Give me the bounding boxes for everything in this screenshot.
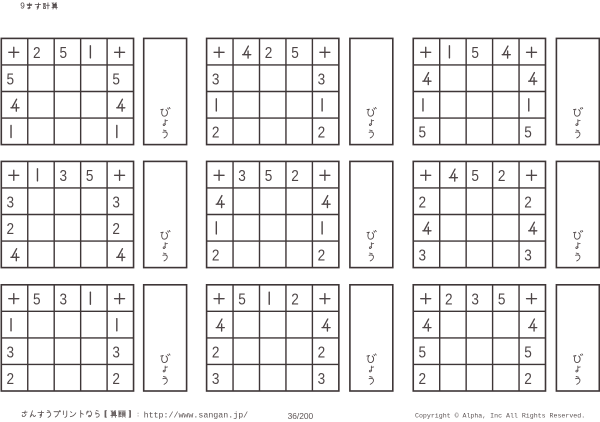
svg-text:2: 2	[524, 371, 532, 388]
svg-text:5: 5	[291, 45, 299, 62]
svg-text:3: 3	[7, 344, 15, 361]
svg-text:5: 5	[471, 168, 479, 185]
svg-text:2: 2	[318, 344, 326, 361]
svg-text:36/200: 36/200	[288, 411, 314, 421]
svg-text:2: 2	[318, 125, 326, 142]
svg-text:http://www.sangan.jp/: http://www.sangan.jp/	[144, 410, 249, 420]
svg-text:2: 2	[7, 221, 15, 238]
svg-text:3: 3	[471, 291, 479, 308]
svg-text:3: 3	[212, 371, 220, 388]
svg-text:5: 5	[419, 125, 427, 142]
svg-text:2: 2	[265, 45, 273, 62]
svg-text:2: 2	[318, 248, 326, 265]
svg-text:5: 5	[59, 45, 67, 62]
svg-text:2: 2	[291, 291, 299, 308]
svg-text:3: 3	[7, 194, 15, 211]
svg-text:5: 5	[112, 71, 120, 88]
svg-text:2: 2	[112, 371, 120, 388]
svg-text:2: 2	[212, 248, 220, 265]
svg-text:5: 5	[238, 291, 246, 308]
svg-text:2: 2	[498, 168, 506, 185]
svg-text:2: 2	[419, 371, 427, 388]
svg-text:2: 2	[7, 371, 15, 388]
svg-text:3: 3	[238, 168, 246, 185]
svg-text:5: 5	[498, 291, 506, 308]
svg-text:Copyright © Alpha, Inc All Rig: Copyright © Alpha, Inc All Rights Reserv…	[415, 411, 585, 419]
svg-text:3: 3	[524, 248, 532, 265]
svg-text:5: 5	[265, 168, 273, 185]
svg-text:2: 2	[445, 291, 453, 308]
svg-text:2: 2	[212, 125, 220, 142]
svg-text:2: 2	[419, 194, 427, 211]
svg-text:3: 3	[318, 371, 326, 388]
svg-text:3: 3	[59, 168, 67, 185]
svg-text:2: 2	[112, 221, 120, 238]
svg-text:5: 5	[524, 125, 532, 142]
svg-text:3: 3	[212, 71, 220, 88]
svg-text:2: 2	[212, 344, 220, 361]
svg-text:5: 5	[419, 344, 427, 361]
svg-text:5: 5	[471, 45, 479, 62]
svg-text:5: 5	[7, 71, 15, 88]
svg-text:3: 3	[112, 194, 120, 211]
svg-text:3: 3	[419, 248, 427, 265]
svg-text:2: 2	[524, 194, 532, 211]
svg-text:9: 9	[20, 2, 25, 11]
svg-text:5: 5	[524, 344, 532, 361]
svg-text:2: 2	[33, 45, 41, 62]
svg-text:2: 2	[291, 168, 299, 185]
svg-text:3: 3	[59, 291, 67, 308]
svg-text:3: 3	[112, 344, 120, 361]
svg-text:3: 3	[318, 71, 326, 88]
svg-text:5: 5	[33, 291, 41, 308]
svg-text:5: 5	[86, 168, 94, 185]
